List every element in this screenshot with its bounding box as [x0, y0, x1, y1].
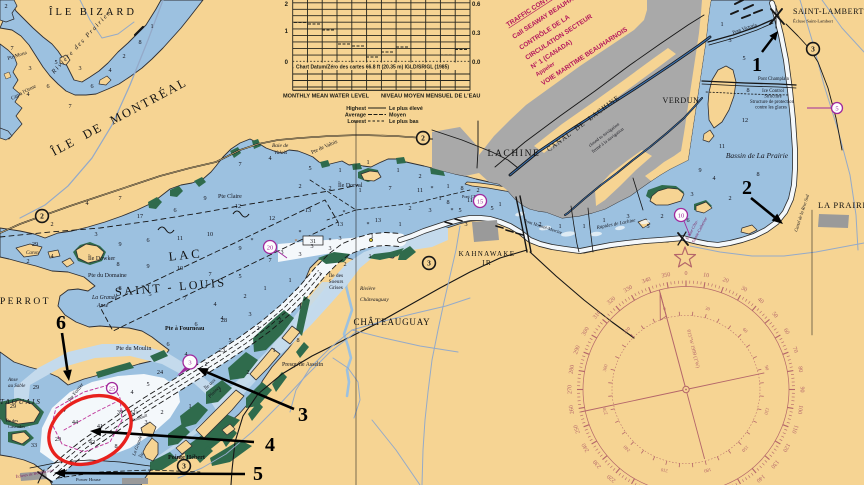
svg-text:Baie de: Baie de — [272, 143, 289, 149]
svg-text:1: 1 — [582, 223, 585, 230]
svg-text:39: 39 — [117, 409, 123, 416]
svg-text:15: 15 — [477, 198, 484, 205]
svg-text:3: 3 — [94, 231, 97, 238]
svg-text:Ice Control: Ice Control — [762, 89, 784, 94]
svg-text:Grises: Grises — [329, 285, 343, 291]
svg-text:Pte Claire: Pte Claire — [218, 194, 242, 200]
svg-text:9: 9 — [238, 245, 241, 252]
svg-text:44: 44 — [72, 419, 78, 426]
svg-text:2: 2 — [122, 53, 125, 60]
svg-text:9: 9 — [146, 263, 149, 270]
svg-text:VERDUN: VERDUN — [663, 96, 700, 105]
svg-text:5: 5 — [646, 223, 649, 230]
svg-text:6: 6 — [46, 83, 49, 90]
svg-text:Anse: Anse — [7, 378, 19, 383]
svg-text:7: 7 — [183, 295, 186, 302]
svg-text:3: 3 — [728, 37, 731, 44]
svg-text:23: 23 — [219, 347, 225, 354]
svg-text:Cascades: Cascades — [8, 424, 25, 429]
svg-text:8: 8 — [460, 185, 463, 192]
svg-text:6: 6 — [173, 207, 176, 214]
svg-text:7: 7 — [388, 185, 391, 192]
svg-text:33: 33 — [31, 442, 37, 449]
svg-text:Pte du Domaine: Pte du Domaine — [88, 273, 127, 279]
svg-text:2: 2 — [742, 177, 752, 199]
svg-text:3: 3 — [811, 45, 815, 54]
svg-text:SAINT-LAMBERT: SAINT-LAMBERT — [793, 7, 864, 16]
svg-text:17: 17 — [137, 213, 143, 220]
svg-text:3: 3 — [78, 65, 81, 72]
svg-text:Structure: Structure — [764, 95, 782, 100]
svg-text:1: 1 — [288, 277, 291, 284]
svg-text:29: 29 — [33, 384, 39, 391]
svg-text:12: 12 — [235, 203, 241, 210]
svg-text:1: 1 — [752, 54, 762, 76]
svg-text:6: 6 — [146, 237, 149, 244]
svg-text:42: 42 — [89, 439, 95, 446]
svg-text:11: 11 — [177, 235, 183, 242]
svg-text:11: 11 — [417, 187, 423, 194]
svg-text:2: 2 — [418, 173, 421, 180]
svg-text:Chart Datum/Zéro des cartes 66: Chart Datum/Zéro des cartes 66.8 ft (20.… — [296, 65, 449, 71]
svg-text:90: 90 — [799, 387, 805, 393]
svg-text:29: 29 — [32, 241, 38, 248]
svg-text:8: 8 — [138, 39, 141, 46]
svg-text:11: 11 — [719, 143, 725, 150]
svg-text:8: 8 — [756, 171, 759, 178]
svg-text:MONTHLY MEAN WATER LEVEL: MONTHLY MEAN WATER LEVEL — [283, 94, 370, 100]
svg-text:CHÂTEAUGUAY: CHÂTEAUGUAY — [354, 317, 431, 327]
svg-text:7: 7 — [68, 103, 71, 110]
svg-text:1: 1 — [338, 167, 341, 174]
svg-text:12: 12 — [269, 215, 275, 222]
svg-text:Île Dowker: Île Dowker — [88, 254, 115, 262]
svg-text:Pont Champlain: Pont Champlain — [758, 77, 790, 82]
svg-text:Anse: Anse — [96, 303, 109, 309]
svg-text:Average: Average — [345, 113, 366, 119]
svg-text:2: 2 — [328, 185, 331, 192]
svg-text:5: 5 — [238, 273, 241, 280]
svg-text:2: 2 — [4, 3, 7, 10]
svg-text:1: 1 — [188, 403, 191, 410]
svg-text:2: 2 — [278, 317, 281, 324]
svg-text:20: 20 — [267, 244, 274, 251]
svg-text:Lowest: Lowest — [347, 119, 366, 125]
svg-text:Le plus bas: Le plus bas — [389, 119, 419, 125]
svg-text:3: 3 — [298, 404, 308, 426]
svg-text:3: 3 — [427, 259, 431, 268]
svg-text:9: 9 — [118, 241, 121, 248]
svg-text:4: 4 — [268, 155, 271, 162]
svg-text:28: 28 — [221, 317, 227, 324]
svg-text:3: 3 — [310, 243, 313, 250]
svg-text:3: 3 — [298, 251, 301, 258]
svg-text:2: 2 — [50, 221, 53, 228]
svg-text:Châteauguay: Châteauguay — [360, 297, 389, 303]
svg-text:*: * — [295, 239, 298, 245]
svg-text:Île des: Île des — [329, 271, 343, 279]
svg-text:1: 1 — [318, 271, 321, 278]
svg-text:1: 1 — [446, 183, 449, 190]
svg-text:6: 6 — [56, 312, 66, 334]
svg-text:Highest: Highest — [346, 106, 366, 112]
svg-text:2: 2 — [204, 361, 207, 368]
svg-text:1: 1 — [396, 167, 399, 174]
svg-text:La Grande: La Grande — [91, 295, 118, 301]
svg-text:1: 1 — [398, 221, 401, 228]
svg-text:7: 7 — [238, 161, 241, 168]
svg-text:7: 7 — [268, 257, 271, 264]
svg-text:5: 5 — [490, 205, 493, 212]
svg-text:3: 3 — [690, 191, 693, 198]
svg-text:TAOUAIS: TAOUAIS — [0, 398, 42, 406]
svg-text:6: 6 — [90, 83, 93, 90]
svg-text:Île Dorval: Île Dorval — [338, 181, 363, 189]
svg-text:10: 10 — [703, 272, 710, 279]
svg-text:9: 9 — [698, 167, 701, 174]
svg-text:24: 24 — [157, 369, 163, 376]
svg-text:29: 29 — [55, 436, 61, 443]
svg-text:8: 8 — [746, 87, 749, 94]
svg-text:Moyen: Moyen — [389, 113, 406, 119]
svg-text:0.3: 0.3 — [472, 31, 481, 37]
svg-text:2: 2 — [660, 213, 663, 220]
svg-text:Pte du Moulin: Pte du Moulin — [116, 345, 151, 352]
svg-text:270: 270 — [568, 385, 574, 394]
svg-text:8: 8 — [296, 337, 299, 344]
svg-text:*: * — [431, 186, 434, 192]
svg-text:PERROT: PERROT — [0, 297, 51, 307]
svg-text:5: 5 — [835, 105, 838, 112]
svg-text:7: 7 — [118, 195, 121, 202]
svg-text:Caron: Caron — [26, 251, 39, 256]
svg-text:1: 1 — [602, 217, 605, 224]
svg-text:13: 13 — [337, 221, 343, 228]
svg-text:3: 3 — [182, 462, 186, 471]
svg-text:2: 2 — [408, 205, 411, 212]
svg-text:2: 2 — [40, 212, 44, 221]
svg-text:LACHINE: LACHINE — [488, 149, 541, 159]
svg-text:2: 2 — [298, 183, 301, 190]
svg-text:au Sable: au Sable — [8, 384, 26, 389]
svg-text:2: 2 — [160, 409, 163, 416]
svg-text:2: 2 — [728, 195, 731, 202]
svg-text:2: 2 — [243, 293, 246, 300]
svg-text:*: * — [343, 210, 346, 216]
svg-text:2: 2 — [476, 187, 479, 194]
svg-text:3: 3 — [464, 221, 467, 228]
svg-text:Île des: Île des — [6, 418, 18, 423]
svg-text:10: 10 — [177, 265, 183, 272]
svg-text:2: 2 — [421, 134, 425, 143]
svg-text:3: 3 — [328, 245, 331, 252]
svg-text:Bassin de La Prairie: Bassin de La Prairie — [726, 151, 789, 160]
svg-text:5: 5 — [308, 165, 311, 172]
svg-text:Le plus élevé: Le plus élevé — [389, 106, 423, 112]
svg-text:4: 4 — [85, 200, 88, 207]
svg-text:5: 5 — [742, 55, 745, 62]
svg-text:3: 3 — [428, 207, 431, 214]
svg-text:9: 9 — [203, 195, 206, 202]
svg-text:4: 4 — [712, 175, 715, 182]
svg-text:Valois: Valois — [274, 150, 287, 156]
svg-text:3: 3 — [144, 419, 147, 426]
svg-text:Presqu'île Asselin: Presqu'île Asselin — [282, 362, 323, 368]
svg-text:LA PRAIRIE: LA PRAIRIE — [818, 200, 864, 210]
svg-text:12: 12 — [742, 117, 748, 124]
svg-text:3: 3 — [188, 359, 191, 366]
svg-text:4: 4 — [130, 389, 133, 396]
svg-text:10: 10 — [678, 212, 685, 219]
svg-text:1: 1 — [366, 159, 369, 166]
svg-text:*: * — [329, 238, 332, 244]
svg-text:2: 2 — [26, 258, 29, 265]
svg-text:IR: IR — [482, 259, 492, 267]
svg-text:8: 8 — [116, 261, 119, 268]
svg-text:2: 2 — [256, 325, 259, 332]
svg-text:1: 1 — [150, 23, 153, 30]
svg-text:*: * — [367, 222, 370, 228]
svg-text:8: 8 — [446, 199, 449, 206]
svg-text:1: 1 — [368, 253, 371, 260]
svg-text:13: 13 — [305, 207, 311, 214]
svg-text:Écluse Saint-Lambert: Écluse Saint-Lambert — [793, 19, 834, 24]
svg-text:1: 1 — [498, 201, 501, 208]
svg-text:*: * — [251, 238, 254, 244]
svg-text:1: 1 — [720, 21, 723, 28]
svg-text:0.0: 0.0 — [472, 60, 481, 66]
svg-text:5: 5 — [253, 463, 263, 485]
svg-text:6: 6 — [166, 341, 169, 348]
svg-text:1: 1 — [263, 285, 266, 292]
svg-text:25: 25 — [109, 385, 116, 392]
svg-text:3: 3 — [248, 311, 251, 318]
svg-text:3: 3 — [28, 65, 31, 72]
svg-text:5: 5 — [228, 337, 231, 344]
svg-text:contre les glaces: contre les glaces — [755, 106, 787, 111]
svg-text:5: 5 — [146, 381, 149, 388]
svg-text:2: 2 — [343, 261, 346, 268]
svg-text:0: 0 — [685, 271, 688, 277]
svg-text:3: 3 — [338, 235, 341, 242]
svg-text:Structure de protection: Structure de protection — [750, 100, 795, 105]
svg-text:80: 80 — [796, 366, 803, 373]
svg-text:1: 1 — [438, 195, 441, 202]
svg-text:*: * — [451, 208, 454, 214]
svg-text:Pte à Fourneau: Pte à Fourneau — [165, 326, 205, 332]
svg-text:5: 5 — [458, 207, 461, 214]
svg-text:10: 10 — [207, 231, 213, 238]
svg-text:4: 4 — [265, 434, 275, 456]
svg-text:7: 7 — [10, 45, 13, 52]
svg-text:2: 2 — [246, 369, 249, 376]
svg-text:*: * — [299, 230, 302, 236]
svg-text:4: 4 — [213, 301, 216, 308]
svg-text:13: 13 — [375, 217, 381, 224]
svg-text:4: 4 — [50, 253, 53, 260]
svg-text:1: 1 — [272, 347, 275, 354]
svg-text:4: 4 — [108, 67, 111, 74]
svg-text:KAHNAWAKE: KAHNAWAKE — [459, 250, 516, 258]
svg-text:0.6: 0.6 — [472, 2, 481, 8]
svg-text:NIVEAU MOYEN MENSUEL DE L'EAU: NIVEAU MOYEN MENSUEL DE L'EAU — [381, 94, 480, 100]
svg-text:Rivière: Rivière — [359, 286, 376, 292]
svg-text:Power House: Power House — [76, 477, 101, 482]
svg-text:ÎLE BIZARD: ÎLE BIZARD — [49, 6, 137, 18]
